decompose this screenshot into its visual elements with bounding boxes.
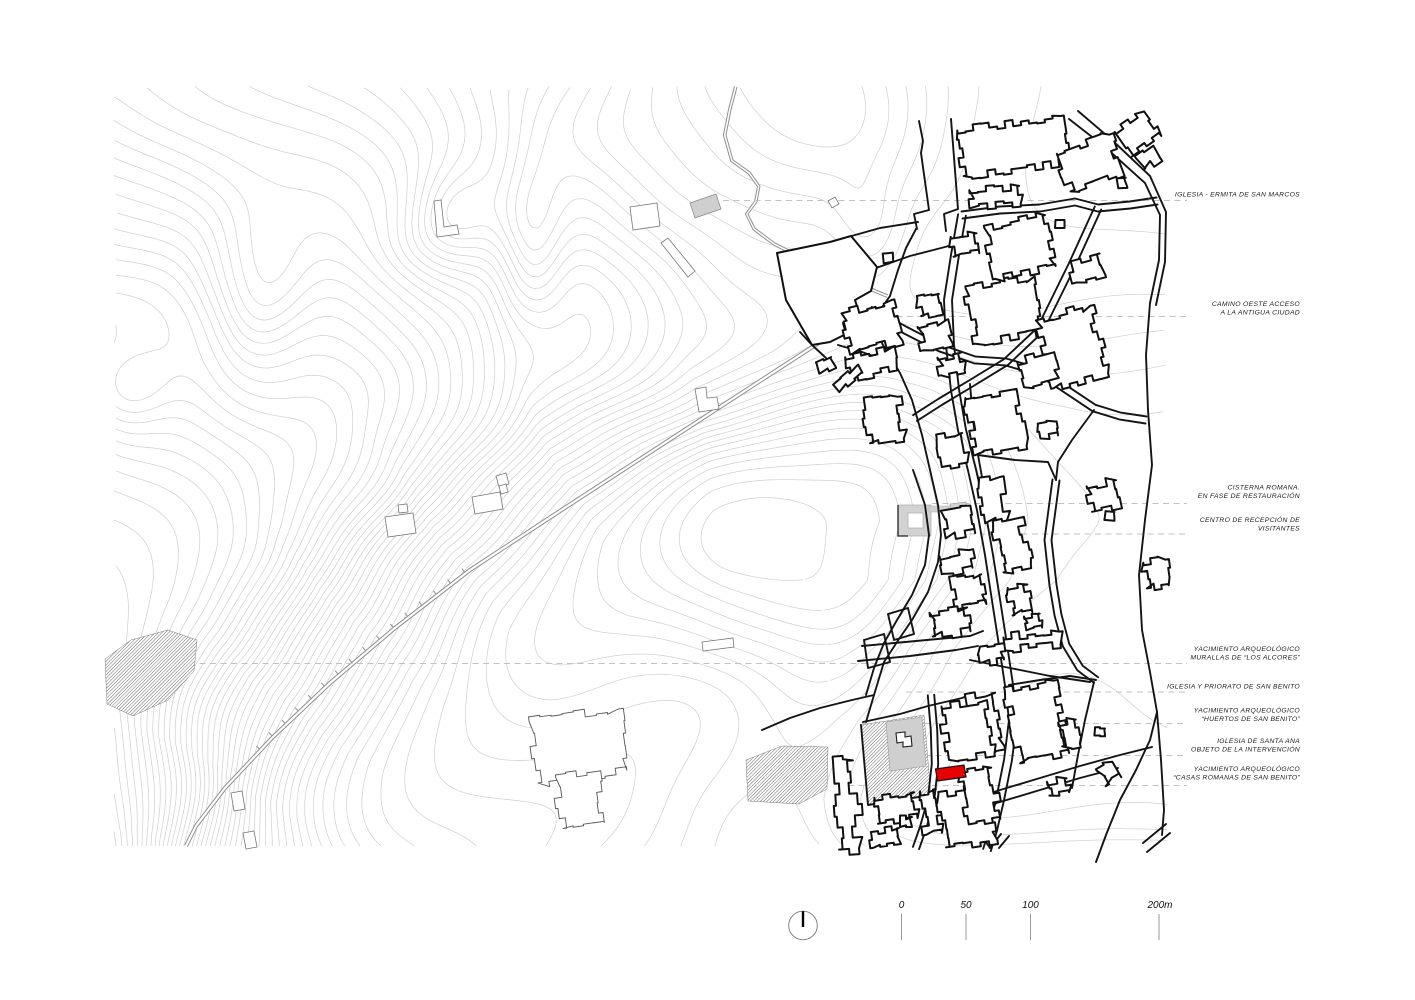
svg-text:200m: 200m [1146,900,1172,911]
svg-text:EN FASE DE RESTAURACIÓN: EN FASE DE RESTAURACIÓN [1198,491,1300,500]
svg-text:YACIMIENTO ARQUEOLÓGICO: YACIMIENTO ARQUEOLÓGICO [1194,644,1301,653]
svg-text:“HUERTOS DE SAN BENITO”: “HUERTOS DE SAN BENITO” [1201,716,1300,723]
svg-text:A LA ANTIGUA CIUDAD: A LA ANTIGUA CIUDAD [1220,310,1300,317]
svg-text:50: 50 [960,900,972,911]
svg-text:VISITANTES: VISITANTES [1258,526,1300,533]
svg-text:CENTRO DE RECEPCIÓN DE: CENTRO DE RECEPCIÓN DE [1200,515,1300,524]
svg-text:0: 0 [899,900,905,911]
svg-text:100: 100 [1022,900,1039,911]
svg-text:YACIMIENTO ARQUEOLÓGICO: YACIMIENTO ARQUEOLÓGICO [1194,764,1301,773]
svg-text:IGLESIA - ERMITA DE SAN MARCOS: IGLESIA - ERMITA DE SAN MARCOS [1175,192,1300,199]
svg-text:YACIMIENTO ARQUEOLÓGICO: YACIMIENTO ARQUEOLÓGICO [1194,706,1301,715]
svg-text:CISTERNA ROMANA.: CISTERNA ROMANA. [1227,485,1300,492]
svg-text:OBJETO DE LA INTERVENCIÓN: OBJETO DE LA INTERVENCIÓN [1191,745,1300,754]
svg-text:IGLESIA DE SANTA ANA: IGLESIA DE SANTA ANA [1217,738,1300,745]
svg-text:“CASAS ROMANAS DE SAN BENITO”: “CASAS ROMANAS DE SAN BENITO” [1173,775,1300,782]
svg-text:IGLESIA Y PRIORATO DE SAN BENI: IGLESIA Y PRIORATO DE SAN BENITO [1167,684,1300,691]
svg-text:CAMINO OESTE ACCESO: CAMINO OESTE ACCESO [1212,301,1301,308]
svg-text:MURALLAS DE “LOS ALCORES”: MURALLAS DE “LOS ALCORES” [1190,655,1300,662]
